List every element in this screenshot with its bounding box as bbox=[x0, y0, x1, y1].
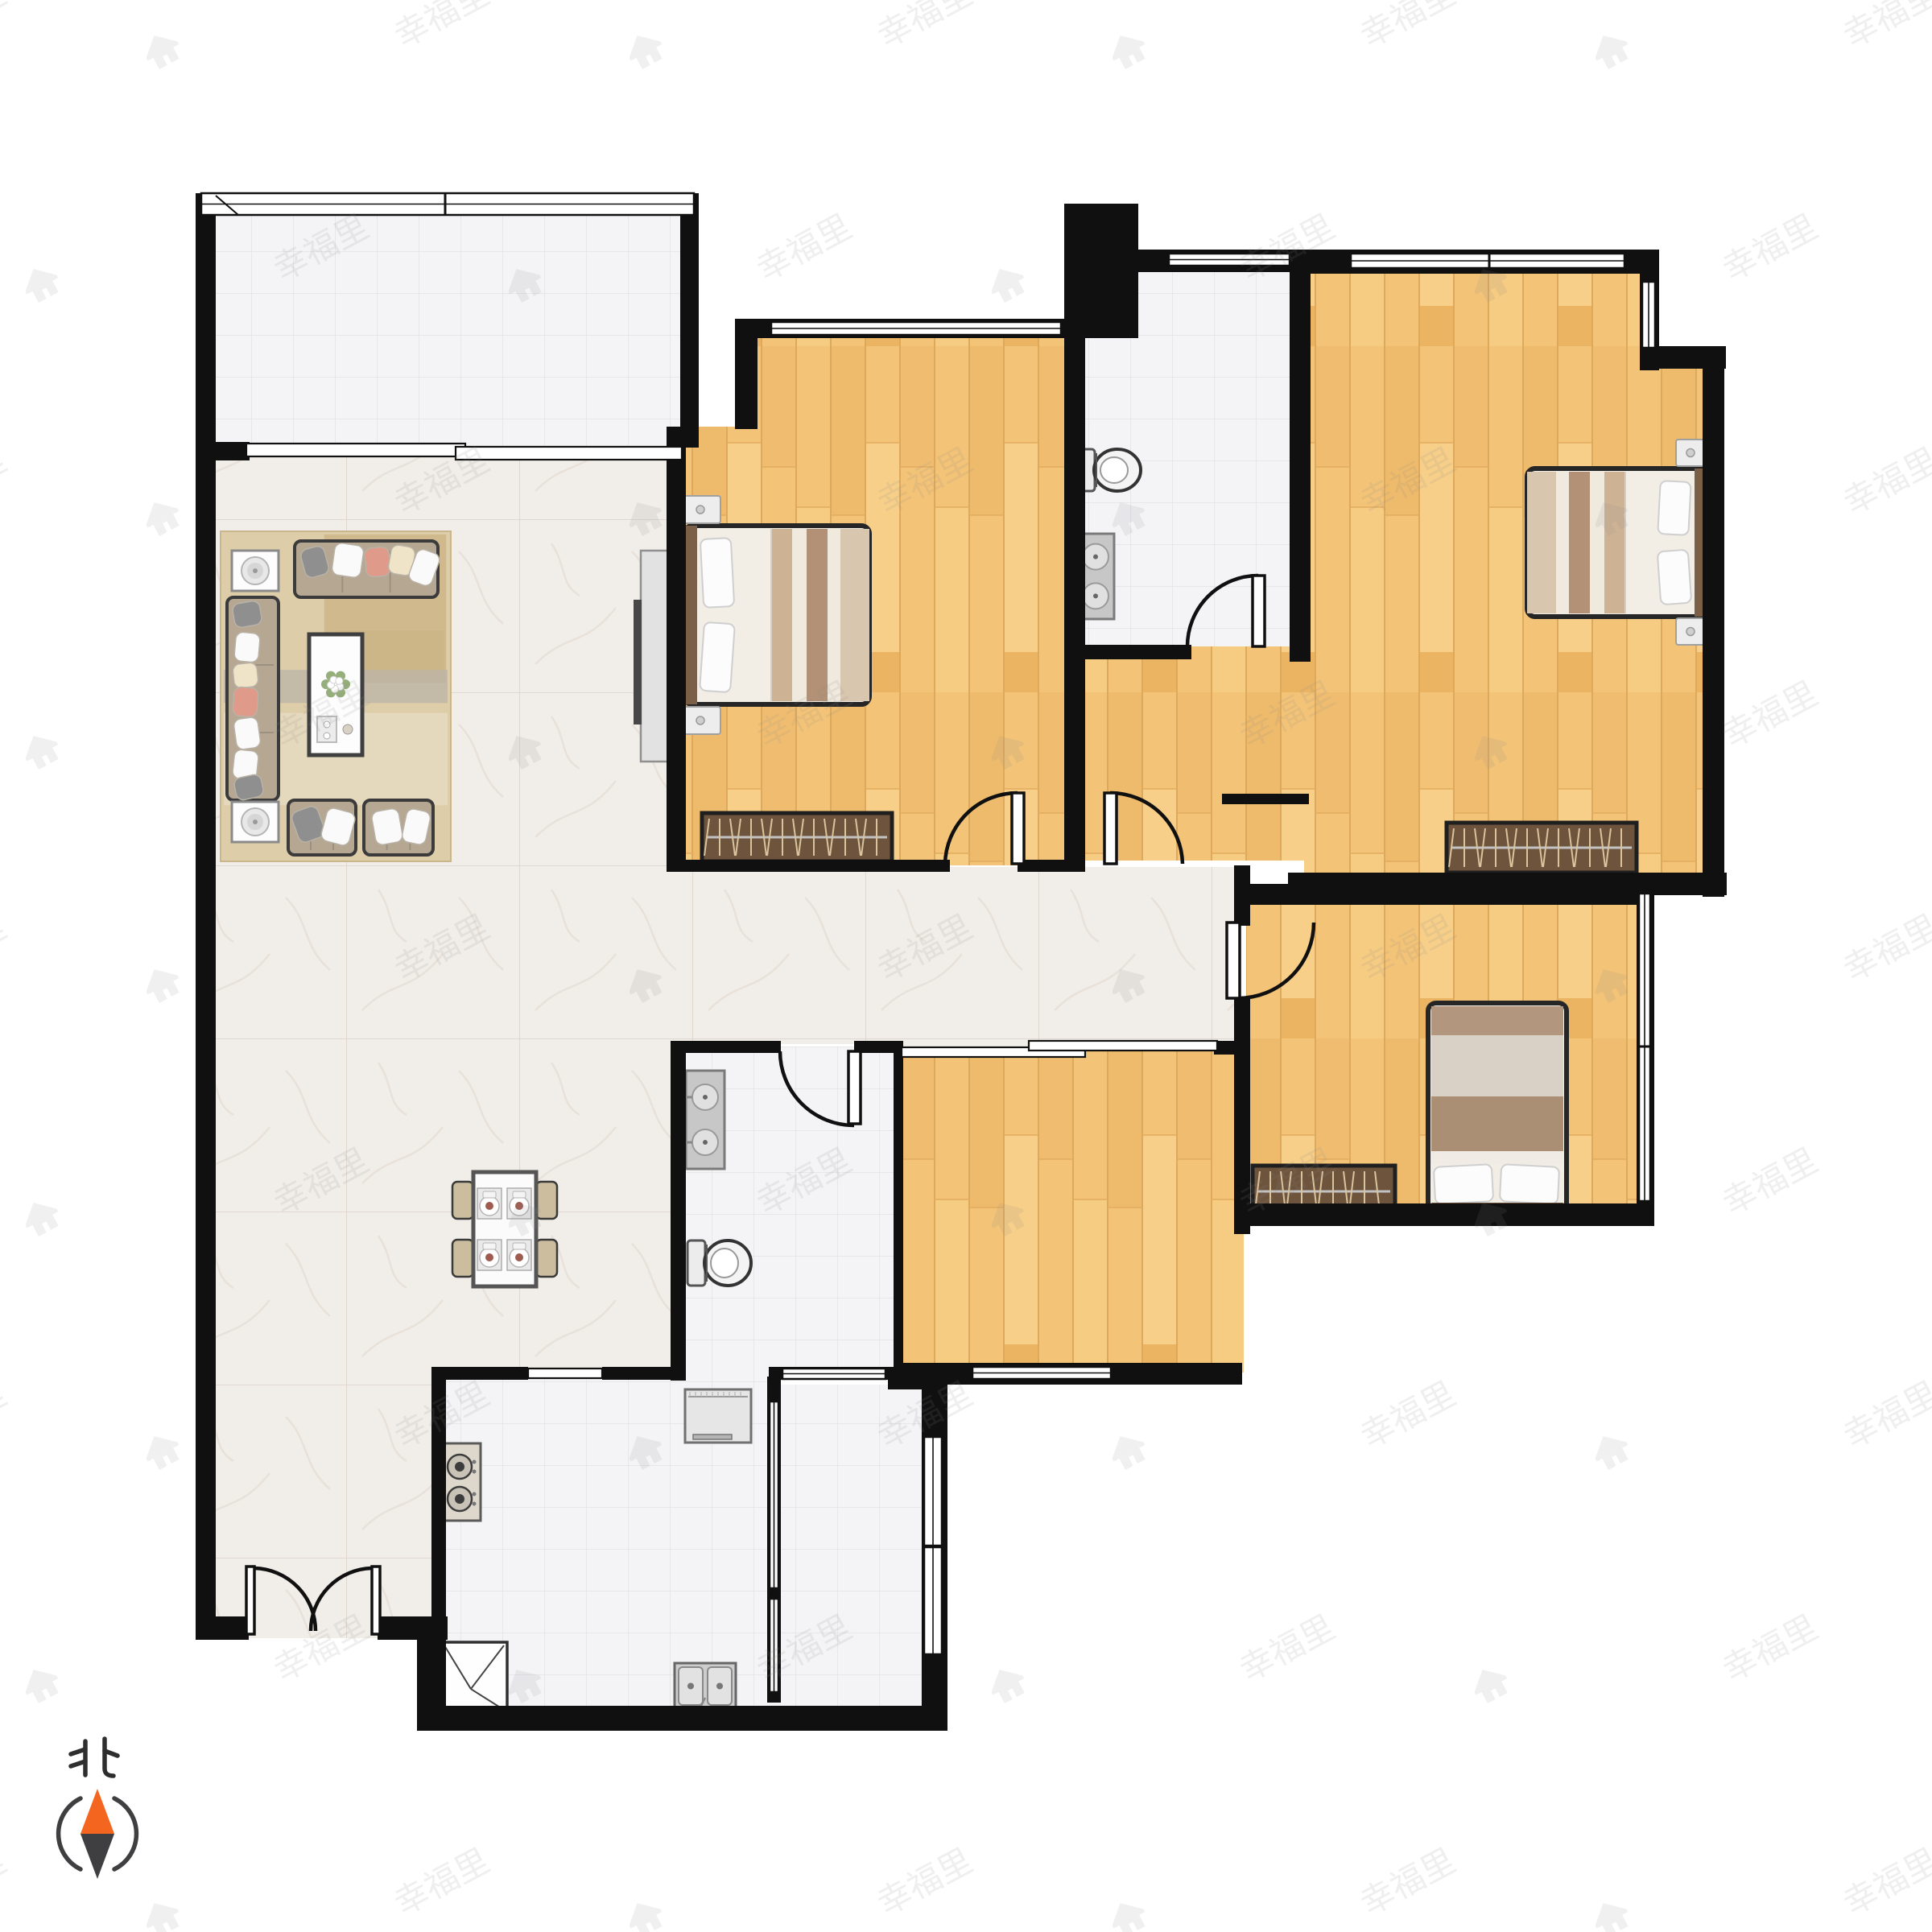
wall bbox=[683, 304, 694, 429]
balcony-sliding-door-2 bbox=[456, 447, 682, 460]
toilet-tank bbox=[687, 1241, 705, 1286]
sofa-chaise bbox=[227, 597, 279, 801]
blanket-stripe bbox=[1556, 472, 1569, 613]
sofa-three-seat bbox=[295, 541, 441, 597]
drain bbox=[716, 1683, 723, 1690]
knob bbox=[473, 1502, 477, 1506]
napkin bbox=[483, 1243, 496, 1249]
wall bbox=[1071, 645, 1191, 659]
drain bbox=[1093, 593, 1098, 598]
window-bedroom-top-middle bbox=[771, 322, 1061, 335]
burner-center bbox=[455, 1462, 464, 1472]
blanket-stripe bbox=[771, 529, 792, 701]
dining-chair bbox=[452, 1182, 473, 1219]
blanket-stripe bbox=[1527, 472, 1556, 613]
window-divider-1 bbox=[770, 1402, 778, 1588]
door-leaf bbox=[1227, 923, 1240, 998]
door-leaf bbox=[1012, 793, 1024, 864]
blanket-stripe bbox=[1431, 1096, 1563, 1151]
pillow bbox=[232, 600, 263, 628]
knob bbox=[473, 1460, 477, 1464]
nightstand bbox=[680, 496, 720, 523]
pillow bbox=[700, 622, 735, 692]
food bbox=[485, 1253, 493, 1261]
wall bbox=[196, 1616, 249, 1640]
dining-chair bbox=[536, 1240, 557, 1277]
drain bbox=[1093, 555, 1098, 559]
bed-middle-right bbox=[1428, 1003, 1567, 1220]
pillow bbox=[1657, 481, 1690, 535]
nightstand bbox=[1676, 618, 1705, 645]
refrigerator bbox=[685, 1389, 751, 1443]
blanket-stripe bbox=[807, 529, 828, 701]
wall bbox=[378, 1616, 448, 1640]
napkin bbox=[483, 1191, 496, 1198]
nightstand-decor bbox=[696, 506, 704, 514]
drain bbox=[687, 1683, 694, 1690]
wall bbox=[894, 1041, 903, 1379]
pillow bbox=[233, 687, 258, 717]
bathroom-vanity bbox=[684, 1071, 724, 1169]
blanket-stripe bbox=[792, 529, 807, 701]
pillow bbox=[1500, 1164, 1559, 1204]
dining-chair bbox=[452, 1240, 473, 1277]
wall bbox=[735, 319, 758, 429]
armchair bbox=[288, 800, 357, 855]
wall bbox=[216, 442, 250, 460]
wall bbox=[1703, 364, 1724, 897]
blanket-stripe bbox=[1569, 472, 1590, 613]
study-sliding-door-2 bbox=[1029, 1041, 1217, 1051]
corner-cabinet bbox=[441, 1642, 507, 1713]
door-leaf bbox=[1104, 793, 1117, 864]
wall bbox=[1018, 860, 1085, 872]
side-table-lamp bbox=[232, 551, 279, 591]
decor bbox=[343, 724, 353, 734]
drain bbox=[703, 1095, 708, 1100]
wall bbox=[671, 1041, 686, 1381]
blanket-stripe bbox=[1431, 1035, 1563, 1096]
wardrobe bbox=[702, 813, 892, 861]
door-leaf bbox=[246, 1567, 254, 1634]
wall bbox=[431, 1367, 528, 1380]
corner-cabinet bbox=[441, 1642, 507, 1713]
blanket-stripe bbox=[1590, 472, 1604, 613]
balcony-sliding-door-1 bbox=[246, 444, 465, 456]
pillow bbox=[233, 716, 262, 750]
kitchen-sink bbox=[675, 1663, 736, 1709]
napkin bbox=[513, 1243, 526, 1249]
dining-chair bbox=[536, 1182, 557, 1219]
pillow bbox=[1657, 550, 1692, 605]
nightstand bbox=[680, 707, 720, 734]
wall bbox=[1250, 884, 1654, 905]
lamp-center bbox=[253, 819, 258, 824]
window-bedroom-middle-right bbox=[1639, 894, 1650, 1201]
wall bbox=[602, 1367, 684, 1380]
wall bbox=[1234, 1203, 1654, 1226]
wall bbox=[196, 193, 216, 1640]
north-label: 北 bbox=[75, 1740, 115, 1785]
bed-top-right bbox=[1527, 469, 1707, 617]
study-room-floor bbox=[900, 1051, 1244, 1373]
blanket-stripe bbox=[840, 529, 869, 701]
floor-plan-svg: 北 幸福里幸福里幸福里幸福里幸福里幸福里幸福里幸福里幸福里幸福里幸福里幸福里幸福… bbox=[0, 0, 1932, 1932]
window-bedroom-top-right bbox=[1351, 254, 1624, 268]
nightstand-decor bbox=[1686, 449, 1695, 457]
burner-center bbox=[455, 1494, 464, 1504]
handle bbox=[693, 1435, 732, 1439]
door-leaf bbox=[372, 1567, 380, 1634]
knob bbox=[473, 1470, 477, 1474]
wall bbox=[419, 1706, 947, 1731]
toilet-seat bbox=[1100, 457, 1128, 483]
wall bbox=[1064, 204, 1138, 338]
toilet bbox=[1077, 449, 1141, 491]
napkin bbox=[513, 1191, 526, 1198]
door-leaf bbox=[848, 1051, 861, 1124]
drain bbox=[703, 1140, 708, 1145]
kitchen-sliding-track bbox=[528, 1368, 602, 1378]
toilet bbox=[687, 1241, 751, 1286]
pillow bbox=[1434, 1164, 1493, 1204]
window-utility-2 bbox=[924, 1547, 942, 1654]
window-utility-1 bbox=[924, 1437, 942, 1546]
blanket-stripe bbox=[1604, 472, 1625, 613]
wall bbox=[1290, 250, 1311, 662]
pillow bbox=[233, 632, 260, 663]
tv-screen bbox=[634, 600, 642, 724]
window-bedroom-top-right-side bbox=[1642, 282, 1655, 348]
wall bbox=[1064, 319, 1085, 872]
nightstand-decor bbox=[696, 716, 704, 724]
nightstand bbox=[1676, 440, 1705, 466]
floor-plan: 北 幸福里幸福里幸福里幸福里幸福里幸福里幸福里幸福里幸福里幸福里幸福里幸福里幸福… bbox=[0, 0, 1932, 1932]
window-study-room bbox=[972, 1367, 1111, 1379]
pillow bbox=[233, 663, 259, 689]
blanket-stripe bbox=[1431, 1151, 1563, 1164]
wall bbox=[667, 427, 686, 872]
knob bbox=[473, 1492, 477, 1496]
wall bbox=[417, 1633, 446, 1731]
wall bbox=[1234, 865, 1250, 926]
food bbox=[515, 1253, 523, 1261]
headboard bbox=[684, 526, 697, 704]
blanket-stripe bbox=[1431, 1006, 1563, 1035]
wardrobe bbox=[1447, 823, 1637, 873]
lamp-center bbox=[253, 568, 258, 573]
wall bbox=[1222, 794, 1309, 804]
nightstand-decor bbox=[1686, 628, 1695, 636]
pillow bbox=[371, 807, 404, 845]
balcony-railing bbox=[201, 193, 694, 215]
door-leaf bbox=[1253, 576, 1265, 646]
wall bbox=[667, 860, 950, 872]
window-kitchen bbox=[782, 1368, 885, 1379]
food bbox=[485, 1202, 493, 1210]
toilet-seat bbox=[711, 1249, 738, 1278]
side-table-lamp bbox=[232, 802, 279, 842]
wall bbox=[671, 1041, 781, 1053]
armchair bbox=[364, 800, 433, 855]
pillow bbox=[364, 547, 390, 577]
pillow bbox=[700, 538, 734, 608]
pillow bbox=[331, 543, 364, 579]
